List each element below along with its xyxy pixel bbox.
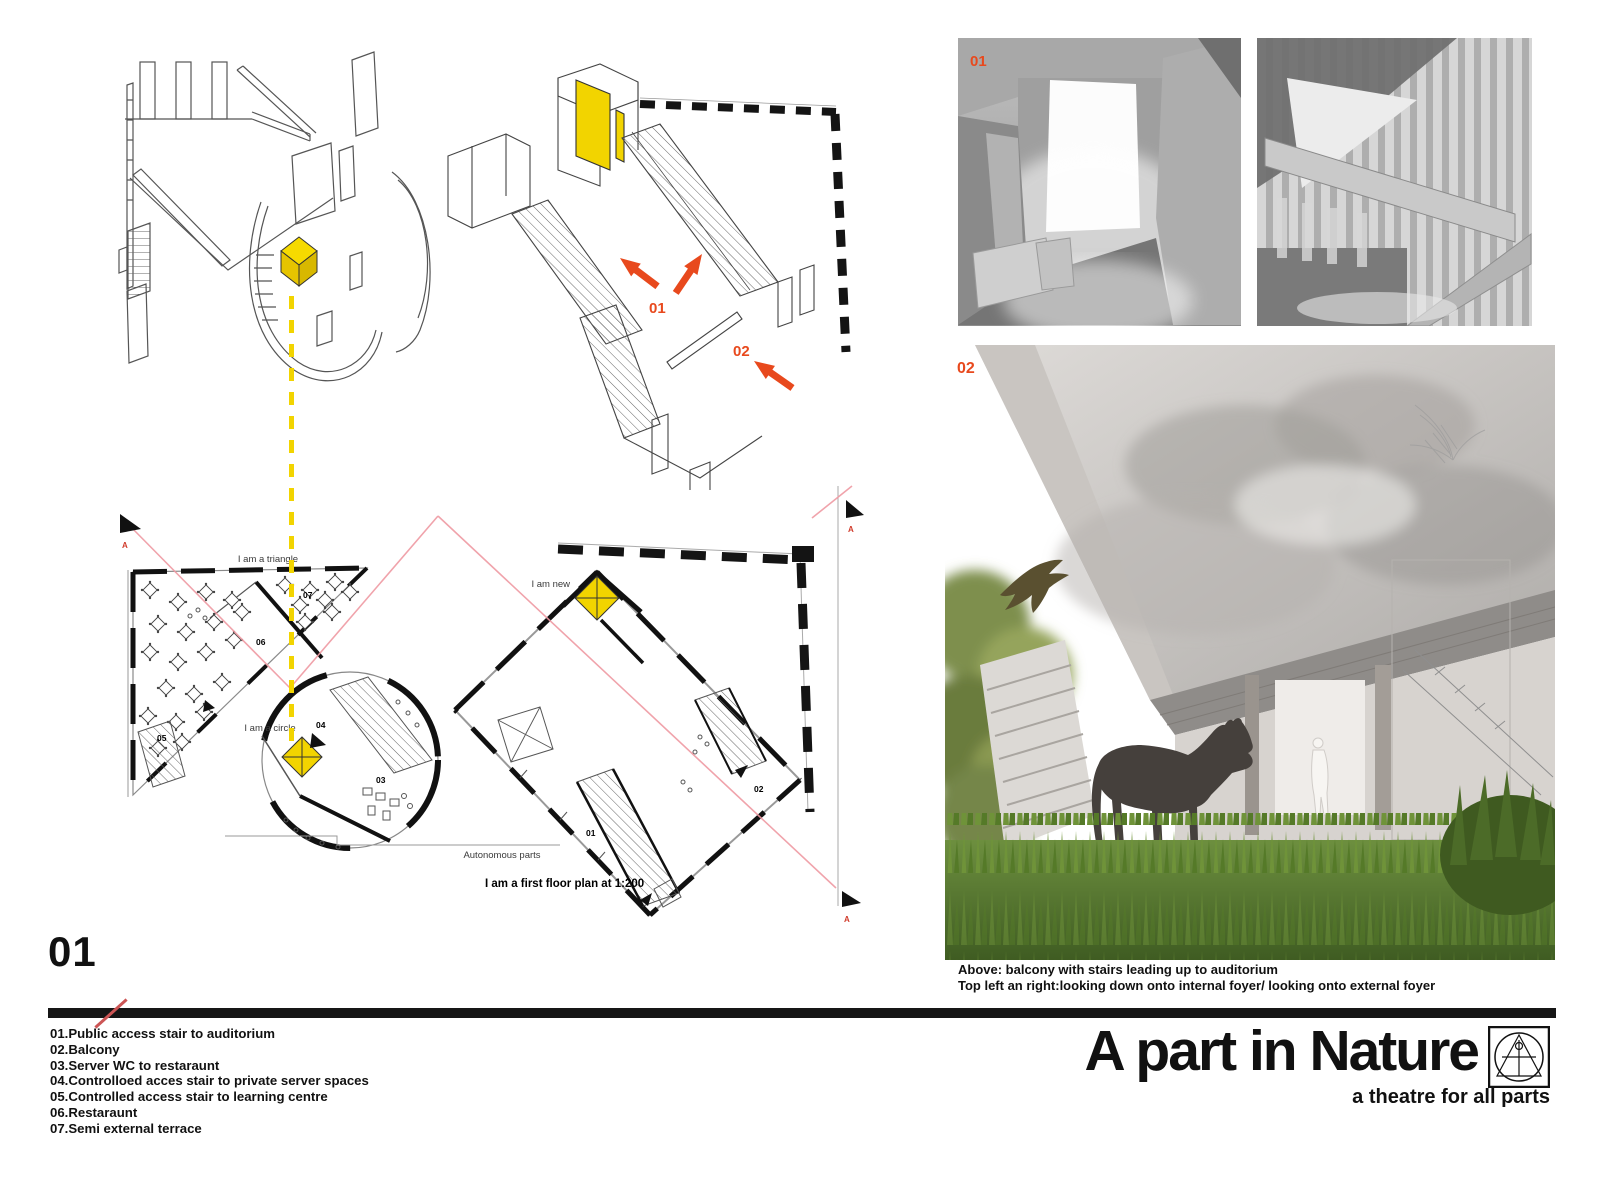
- legend-item: 06.Restaraunt: [50, 1105, 369, 1121]
- room-06: 06: [256, 637, 266, 647]
- stair-structure: [448, 64, 814, 490]
- axonometric-staircase-diagram: 01 02: [430, 50, 870, 490]
- legend-item: 07.Semi external terrace: [50, 1121, 369, 1137]
- section-marker-icon: A: [122, 541, 128, 550]
- legend: 01.Public access stair to auditorium 02.…: [50, 1026, 369, 1137]
- title-block: A part in Nature: [900, 1022, 1550, 1088]
- presentation-board: 01 02: [0, 0, 1600, 1200]
- photo-external-foyer: [1257, 38, 1532, 326]
- photo-internal-foyer: 01: [958, 38, 1241, 326]
- elevator-cube: [281, 237, 317, 286]
- project-subtitle: a theatre for all parts: [900, 1086, 1550, 1109]
- photo1-label: 01: [970, 53, 987, 70]
- section-marker-icon: A: [844, 915, 850, 924]
- room-04: 04: [316, 720, 326, 730]
- vitruvian-logo-icon: [1488, 1026, 1550, 1088]
- photo2-label: 02: [957, 360, 975, 377]
- room-01: 01: [586, 828, 596, 838]
- section-marker-icon: A: [848, 525, 854, 534]
- plan-scale-caption: I am a first floor plan at 1:200: [485, 878, 644, 890]
- caption-line-2: Top left an right:looking down onto inte…: [958, 978, 1435, 994]
- new-plan-label: I am new: [531, 579, 570, 590]
- elevator-alignment-dashed-line: [289, 296, 294, 746]
- circle-plan-label: I am a circle: [244, 723, 295, 734]
- divider-bar: [48, 1008, 1556, 1018]
- photo-balcony-montage: 02: [945, 345, 1555, 960]
- legend-item: 04.Controlloed acces stair to private se…: [50, 1073, 369, 1089]
- callout-02: 02: [733, 343, 750, 360]
- first-floor-plan: 05 06 07 I am a triangle: [40, 470, 880, 960]
- wall-panels: [119, 52, 430, 381]
- diamond-plan: 01 02 I am new: [455, 572, 800, 915]
- callout-01: 01: [649, 300, 666, 317]
- room-07: 07: [303, 590, 313, 600]
- circle-plan: 04 03 I am a circle: [244, 672, 438, 849]
- room-05: 05: [157, 733, 167, 743]
- room-03: 03: [376, 775, 386, 785]
- legend-item: 05.Controlled access stair to learning c…: [50, 1089, 369, 1105]
- legend-item: 01.Public access stair to auditorium: [50, 1026, 369, 1042]
- legend-item: 03.Server WC to restaraunt: [50, 1058, 369, 1074]
- caption-line-1: Above: balcony with stairs leading up to…: [958, 962, 1435, 978]
- legend-item: 02.Balcony: [50, 1042, 369, 1058]
- dashed-wall: [640, 98, 846, 352]
- sheet-number: 01: [48, 928, 97, 976]
- axonometric-exploded-walls: [80, 25, 470, 390]
- photo-captions: Above: balcony with stairs leading up to…: [958, 962, 1435, 993]
- room-02: 02: [754, 784, 764, 794]
- project-title: A part in Nature: [1085, 1022, 1478, 1082]
- autonomous-label: Autonomous parts: [463, 850, 540, 861]
